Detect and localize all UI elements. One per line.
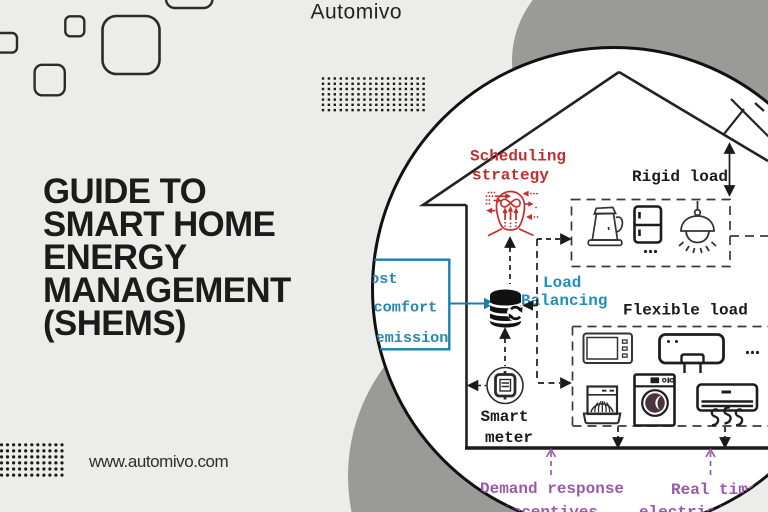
svg-text:Flexible load: Flexible load — [623, 302, 748, 320]
svg-text:Demand response: Demand response — [480, 480, 624, 498]
svg-text:Automivo: Automivo — [311, 1, 403, 24]
svg-text:(SHEMS): (SHEMS) — [43, 304, 186, 343]
svg-text:Smart: Smart — [481, 408, 529, 426]
svg-text:meter: meter — [485, 429, 533, 447]
svg-text:emission: emission — [376, 329, 449, 347]
svg-text:Rigid load: Rigid load — [632, 168, 728, 186]
svg-text:Load: Load — [543, 274, 581, 292]
svg-text:Balancing: Balancing — [521, 292, 607, 310]
svg-text:Scheduling: Scheduling — [470, 148, 566, 166]
svg-text:www.automivo.com: www.automivo.com — [88, 452, 229, 471]
svg-text:comfort: comfort — [374, 299, 438, 317]
svg-text:strategy: strategy — [472, 167, 549, 185]
